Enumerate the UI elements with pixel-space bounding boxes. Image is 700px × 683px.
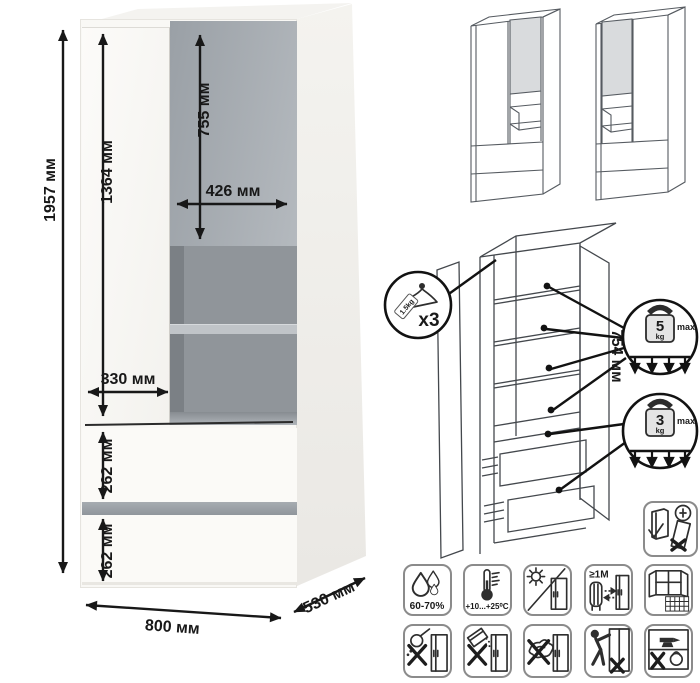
icon-radiator-distance: ≥1M [584, 564, 633, 616]
icon-no-direct-sunlight [523, 564, 572, 616]
drawer-load-callout: 3 kg max [623, 394, 697, 468]
furniture-spec-sheet: 1957 мм 1364 мм 755 мм 426 мм 330 мм 262… [0, 0, 700, 683]
wardrobe-open-niche [170, 246, 297, 425]
icon-temperature: +10...+25⁰C [463, 564, 512, 616]
wardrobe-left-door [82, 27, 170, 425]
icon-ventilation-window [644, 564, 693, 616]
wardrobe-side-face [297, 4, 367, 586]
hanger-callout: 1.5kg x3 [385, 272, 451, 338]
icon-no-heavy-overload [644, 624, 693, 678]
dim-arrow-width [86, 605, 281, 618]
callout-dots [541, 283, 563, 494]
wardrobe-drawer-bottom [82, 515, 297, 585]
svg-text:+10...+25⁰C: +10...+25⁰C [465, 602, 508, 611]
icon-humidity: 60-70% [403, 564, 452, 616]
icon-no-climbing-pulling [584, 624, 633, 678]
niche-floor [170, 412, 297, 425]
icon-no-abrasive-powder [463, 624, 512, 678]
shelf-load-max: max [677, 322, 695, 332]
variant-outline-left [463, 4, 568, 210]
variant-outline-right [588, 2, 693, 208]
exploded-carcass [437, 223, 616, 558]
svg-text:≥1M: ≥1M [589, 570, 609, 581]
callout-lines [446, 260, 626, 489]
dim-label-depth: 530 мм [301, 579, 358, 618]
wardrobe-gray-door [170, 21, 297, 246]
dim-arrow-depth [294, 578, 365, 612]
wardrobe-drawer-top [82, 428, 297, 502]
dim-label-total-height: 1957 мм [42, 158, 59, 222]
drawer-gap-strip [82, 502, 297, 515]
shelf-load-callout: 5 kg max [623, 300, 697, 374]
drawer-load-max: max [677, 416, 695, 426]
niche-side-wall [170, 246, 184, 425]
secure-to-wall-warning-icon [643, 501, 698, 557]
hanger-qty-label: x3 [418, 310, 439, 331]
drawer-load-unit: kg [656, 426, 665, 435]
icon-no-pouring-liquids [403, 624, 452, 678]
svg-text:60-70%: 60-70% [410, 601, 445, 612]
dim-label-width: 800 мм [144, 617, 200, 638]
icon-no-wet-cleaning [523, 624, 572, 678]
shelf-load-unit: kg [656, 332, 665, 341]
niche-shelf [170, 324, 297, 334]
